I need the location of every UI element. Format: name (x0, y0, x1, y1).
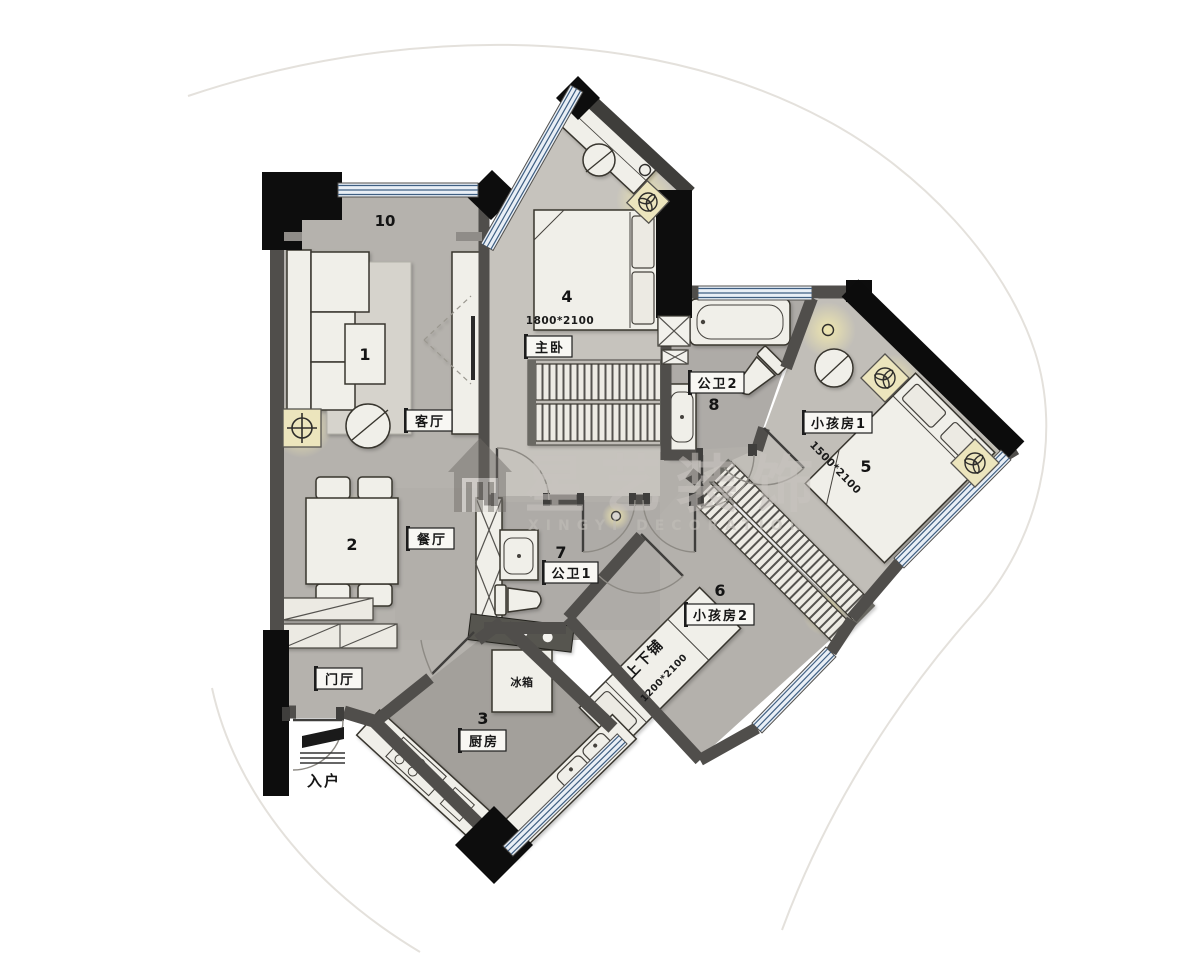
bath1-number: 7 (555, 543, 566, 562)
curtain-rail (456, 232, 482, 241)
svg-text:餐厅: 餐厅 (416, 532, 447, 548)
coffee-table-number: 1 (359, 345, 370, 364)
watermark-title: 星艺装饰 (524, 448, 828, 521)
kitchen-label: 厨房 (458, 728, 506, 753)
floor-plan-drawing: 星艺装饰 XINGYI DECORATION 10 1 客厅 2 餐厅 门厅 入… (0, 0, 1200, 965)
master-bed-size: 1800*2100 (526, 315, 594, 327)
master-bed-number: 4 (561, 287, 572, 306)
tv-cabinet (452, 252, 480, 434)
bath2-label: 公卫2 (688, 370, 744, 395)
kids1-label: 小孩房1 (802, 410, 872, 435)
entry-label: 入户 (307, 772, 341, 790)
svg-text:公卫2: 公卫2 (697, 377, 738, 392)
watermark-subtitle: XINGYI DECORATION (528, 518, 808, 534)
entry-steps-icon (300, 727, 345, 763)
hall-label: 门厅 (314, 666, 362, 691)
svg-text:小孩房2: 小孩房2 (693, 608, 749, 624)
bath2-number: 8 (708, 395, 719, 414)
svg-text:小孩房1: 小孩房1 (811, 416, 867, 432)
floor-plan-page: 星艺装饰 XINGYI DECORATION 10 1 客厅 2 餐厅 门厅 入… (0, 0, 1200, 965)
sofa-back (287, 250, 311, 418)
svg-text:厨房: 厨房 (469, 734, 499, 750)
living-window (338, 183, 478, 197)
bath2-window (698, 286, 812, 300)
master-label: 主卧 (524, 334, 572, 359)
pillow (632, 272, 654, 324)
bath2-east-wall (757, 428, 764, 450)
living-room-label: 客厅 (404, 408, 452, 433)
service-shafts (658, 316, 690, 364)
dining-chair (316, 477, 350, 499)
tub-faucet (701, 320, 705, 324)
kitchen-number: 3 (477, 709, 488, 728)
kids2-label: 小孩房2 (684, 602, 754, 627)
dining-chair (358, 477, 392, 499)
living-zone-number: 10 (375, 212, 396, 230)
kids2-number: 6 (714, 581, 725, 600)
svg-text:公卫1: 公卫1 (551, 567, 592, 582)
kids1-bed-number: 5 (860, 457, 871, 476)
dining-table-number: 2 (346, 535, 357, 554)
fridge-label: 冰箱 (511, 675, 534, 689)
pillow (632, 216, 654, 268)
dining-room-label: 餐厅 (406, 526, 454, 551)
svg-text:客厅: 客厅 (415, 414, 445, 430)
bath1-label: 公卫1 (542, 560, 598, 585)
curtain-rail (284, 232, 302, 241)
svg-text:主卧: 主卧 (535, 340, 565, 356)
sofa-chaise (311, 252, 369, 312)
floor-lamp (283, 409, 321, 447)
svg-text:门厅: 门厅 (325, 672, 355, 688)
master-wardrobe (528, 360, 668, 445)
